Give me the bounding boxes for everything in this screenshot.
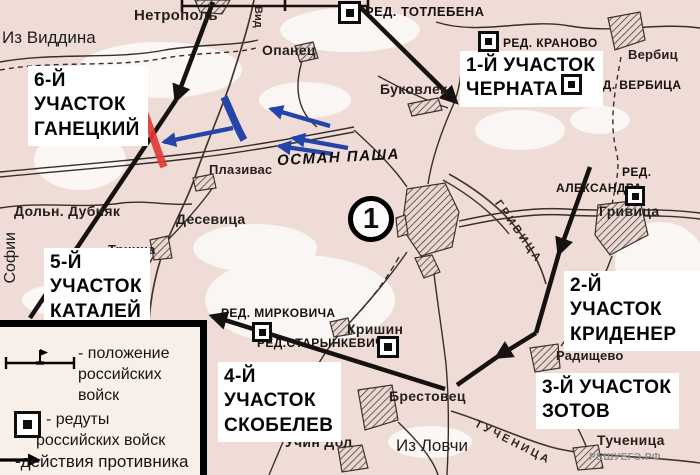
- sector-4-line1: 4-Й: [224, 365, 333, 389]
- sector-label-6-ganetsky: 6-Й УЧАСТОК ГАНЕЦКИЙ: [28, 66, 148, 146]
- bukovlek-shape: [408, 98, 442, 116]
- road-city-north: [428, 56, 461, 184]
- place-opanec: Опанец: [262, 42, 316, 58]
- redoubt-symbol-krishin: [377, 336, 399, 358]
- enemy-arrow-2: [293, 138, 348, 148]
- legend-position-line-symbol: [4, 347, 78, 371]
- sector-label-5-kataley: 5-Й УЧАСТОК КАТАЛЕЙ: [44, 248, 150, 328]
- redoubt-symbol-totlebena: [338, 1, 361, 24]
- legend-item-enemy-label: -действия противника: [15, 451, 188, 472]
- sector-4-line2: УЧАСТОК: [224, 389, 333, 413]
- redoubt-label-mirkovicha: РЕД. МИРКОВИЧА: [221, 306, 336, 320]
- redoubt-label-kranovo: РЕД. КРАНОВО: [503, 36, 598, 50]
- sector-3-line2: ЗОТОВ: [542, 400, 671, 424]
- place-desevica: Десевица: [176, 211, 246, 227]
- redoubt-label-aleksandra-line1: РЕД.: [622, 165, 652, 179]
- route-to-sofia: Софии: [2, 232, 20, 284]
- redoubt-symbol-kranovo: [478, 31, 499, 52]
- sector-6-line2: УЧАСТОК: [34, 93, 140, 117]
- sector-label-4-skobelev: 4-Й УЧАСТОК СКОБЕЛЕВ: [218, 362, 341, 442]
- redoubt-label-totlebena: РЕД. ТОТЛЕБЕНА: [365, 4, 484, 19]
- place-tuchenica: Тученица: [597, 432, 665, 448]
- enemy-front-blue-bar: [224, 97, 244, 140]
- route-from-lovcha: Из Ловчи: [396, 436, 468, 456]
- sector-3-line1: 3-Й УЧАСТОК: [542, 376, 671, 400]
- redoubt-symbol-mirkovicha: [252, 322, 272, 342]
- legend-box: - положение российских войск - редуты ро…: [0, 320, 207, 475]
- watermark: РЕШУЕГЭ.РФ: [589, 452, 661, 463]
- legend-item-redoubt-label: - редуты российских войск: [46, 409, 165, 451]
- redoubt-label-starynkevicha: РЕД.СТАРЫНКЕВИЧА: [257, 336, 393, 350]
- position-line-east-4: [457, 357, 497, 385]
- redoubt-symbol-verbica: [561, 74, 582, 95]
- verbica-shape: [608, 12, 645, 50]
- place-bukovlek: Буковлек: [380, 81, 447, 97]
- sector-5-line2: УЧАСТОК: [50, 275, 142, 299]
- sector-5-line1: 5-Й: [50, 251, 142, 275]
- sector-2-line1: 2-Й УЧАСТОК: [570, 274, 692, 323]
- place-doln-dubnyak: Дольн. Дубняк: [14, 203, 120, 219]
- route-from-vidin: Из Виддина: [2, 28, 96, 48]
- sector-6-line3: ГАНЕЦКИЙ: [34, 118, 140, 142]
- sector-4-line3: СКОБЕЛЕВ: [224, 414, 333, 438]
- place-verbic: Вербиц: [628, 47, 678, 62]
- road-top-right: [436, 22, 700, 29]
- sector-6-line1: 6-Й: [34, 69, 140, 93]
- redoubt-symbol-aleksandra: [625, 186, 645, 206]
- sector-label-3-zotov: 3-Й УЧАСТОК ЗОТОВ: [536, 373, 679, 429]
- plevna-siege-map: Из Виддина Нетрополь Вид Опанец Буковлек…: [0, 0, 700, 475]
- river-grivica-1: [449, 174, 546, 284]
- place-plazivas: Плазивас: [209, 162, 272, 177]
- place-brestovec: Брестовец: [389, 388, 466, 404]
- legend-item-position-label: - положение российских войск: [78, 343, 170, 406]
- sector-2-line2: КРИДЕНЕР: [570, 323, 692, 347]
- sector-label-2-kridener: 2-Й УЧАСТОК КРИДЕНЕР: [564, 271, 700, 351]
- river-label-vid: Вид: [252, 6, 264, 28]
- position-line-east-3: [497, 333, 536, 357]
- legend-redoubt-symbol: [14, 411, 41, 438]
- place-krishin: Кришин: [347, 321, 403, 337]
- enemy-arrow-4: [164, 128, 233, 142]
- place-netropol: Нетрополь: [134, 7, 218, 24]
- map-number-marker: 1: [348, 196, 394, 242]
- city-plevna-shape: [402, 183, 459, 256]
